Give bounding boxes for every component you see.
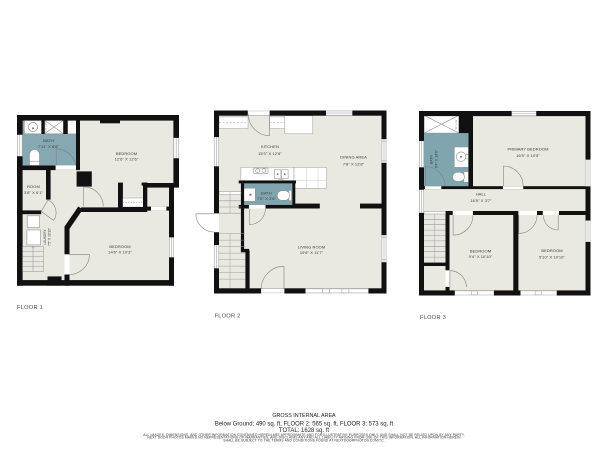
svg-text:2'10" X 2'5": 2'10" X 2'5": [45, 121, 47, 131]
svg-text:9'4" X 10'10": 9'4" X 10'10": [469, 254, 493, 259]
svg-text:7'8" X 12'8": 7'8" X 12'8": [343, 162, 365, 167]
svg-text:5'10" X 10'10": 5'10" X 10'10": [539, 255, 565, 260]
svg-text:16'5" X 3'7": 16'5" X 3'7": [470, 198, 492, 203]
svg-text:BEDROOM: BEDROOM: [541, 248, 562, 253]
svg-text:GROSS INTERNAL AREA: GROSS INTERNAL AREA: [272, 413, 336, 419]
svg-text:FLOOR 1: FLOOR 1: [17, 305, 43, 311]
svg-text:BATH: BATH: [43, 138, 54, 143]
svg-text:7'0" X 3'6": 7'0" X 3'6": [257, 196, 277, 201]
svg-text:KITCHEN: KITCHEN: [261, 144, 279, 149]
svg-text:LIVING ROOM: LIVING ROOM: [298, 244, 326, 249]
svg-text:6'4" X 10'6": 6'4" X 10'6": [435, 149, 439, 168]
svg-text:LAUNDRY: LAUNDRY: [43, 229, 47, 245]
svg-text:14'6" X 10'3": 14'6" X 10'3": [108, 250, 132, 255]
svg-text:12'6" X 12'6": 12'6" X 12'6": [115, 157, 139, 162]
svg-text:ROOM: ROOM: [27, 184, 40, 189]
svg-text:BEDROOM: BEDROOM: [116, 151, 137, 156]
svg-text:FLOOR 2: FLOOR 2: [215, 313, 241, 319]
svg-text:3'0" X 2'10": 3'0" X 2'10": [456, 119, 458, 129]
svg-text:HALL: HALL: [476, 191, 487, 196]
svg-text:FLOOR 3: FLOOR 3: [420, 315, 446, 321]
svg-text:BATH: BATH: [430, 154, 434, 164]
svg-text:BEDROOM: BEDROOM: [470, 248, 491, 253]
svg-text:BATH: BATH: [261, 190, 272, 195]
svg-text:7'5" X 10'10": 7'5" X 10'10": [47, 228, 51, 246]
svg-text:DINING AREA: DINING AREA: [340, 155, 367, 160]
svg-text:15'3" X 12'8": 15'3" X 12'8": [258, 151, 282, 156]
svg-text:BEDROOM: BEDROOM: [109, 244, 130, 249]
svg-text:SHALL BE SUBJECT TO THE TERMS: SHALL BE SUBJECT TO THE TERMS AND CONDIT…: [223, 439, 385, 443]
svg-text:19'8" X 11'7": 19'8" X 11'7": [300, 250, 324, 255]
svg-text:3'8" X 6'1": 3'8" X 6'1": [24, 190, 44, 195]
svg-text:Below Ground: 490 sq. ft, FLOO: Below Ground: 490 sq. ft, FLOOR 2: 565 s…: [215, 421, 394, 427]
svg-text:PRIMARY BEDROOM: PRIMARY BEDROOM: [507, 146, 548, 151]
svg-text:7'11" X 6'8": 7'11" X 6'8": [38, 144, 60, 149]
svg-text:16'5" X 10'5": 16'5" X 10'5": [516, 153, 540, 158]
